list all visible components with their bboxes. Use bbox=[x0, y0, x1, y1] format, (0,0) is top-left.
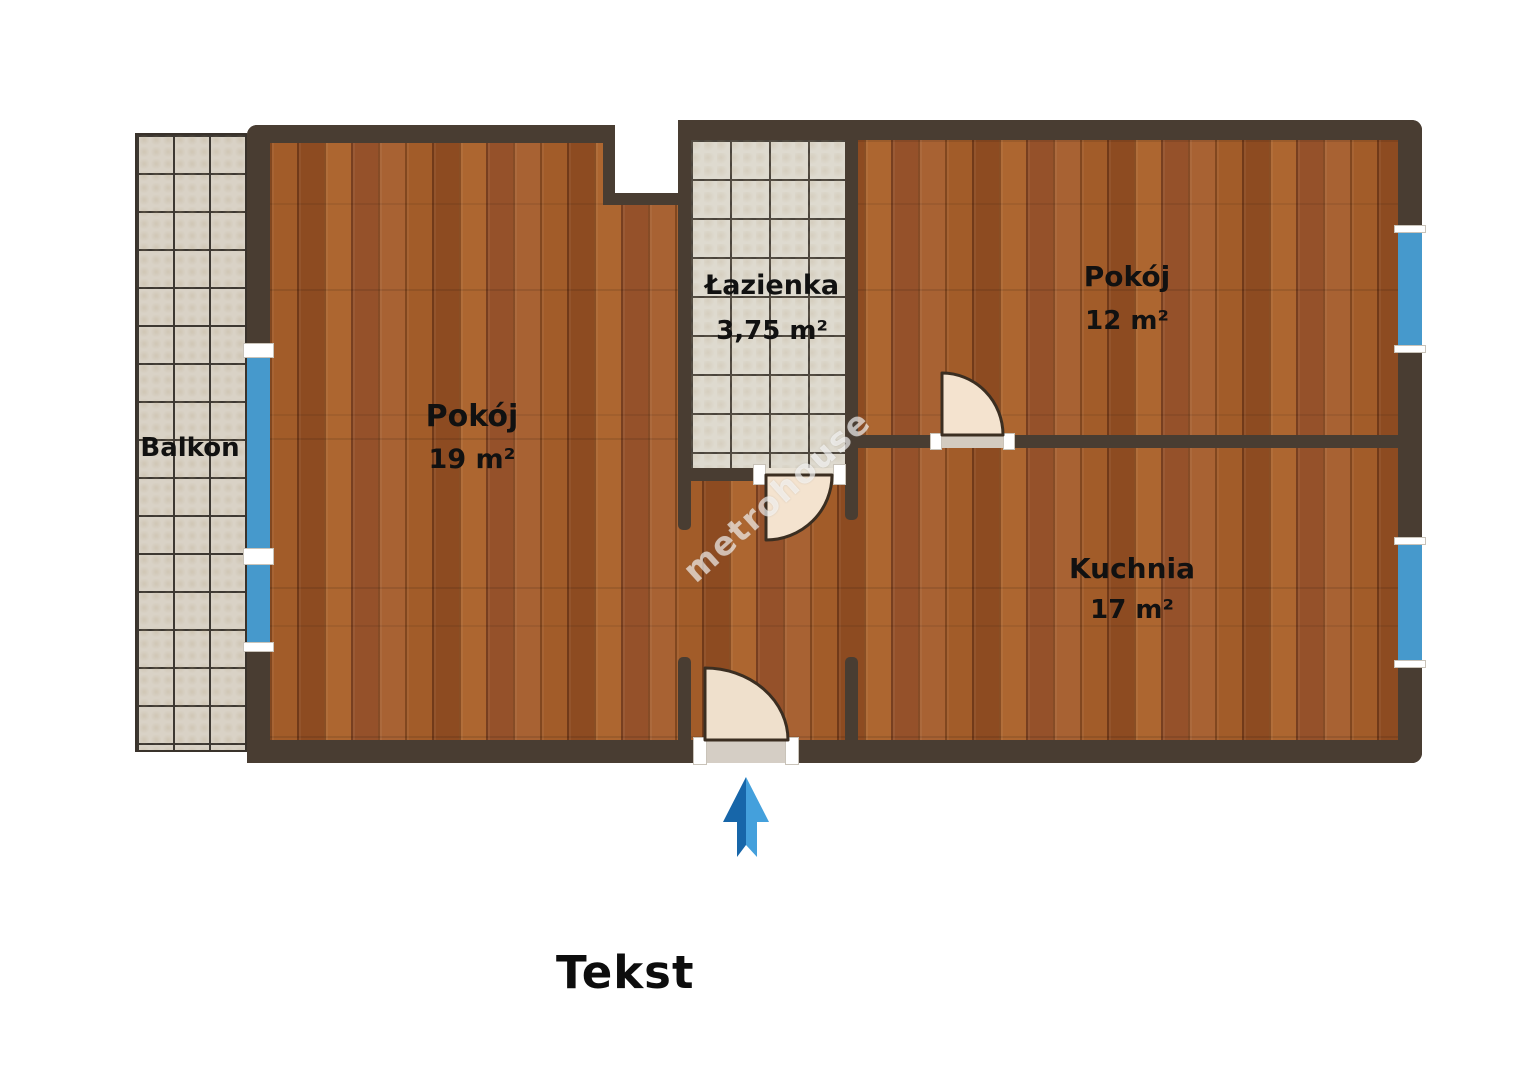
floor-plan: Pokój 19 m² Łazienka 3,75 m² Pokój 12 m²… bbox=[0, 0, 1526, 1080]
window-jamb bbox=[1394, 537, 1426, 545]
wall-left-upper bbox=[247, 125, 270, 343]
room-name: Łazienka bbox=[662, 272, 882, 299]
wall-room12-kitchen-right bbox=[1015, 435, 1398, 448]
wall-bathroom-bottom bbox=[691, 468, 753, 481]
window-jamb bbox=[243, 343, 274, 358]
wall-bottom-right bbox=[799, 740, 1422, 763]
wall-bottom-left bbox=[247, 740, 693, 763]
room-name: Balkon bbox=[129, 435, 251, 461]
room-name: Pokój bbox=[1017, 263, 1237, 291]
room12-window bbox=[1398, 233, 1422, 345]
balcony-window-lower bbox=[247, 565, 270, 642]
room-label-balkon: Balkon bbox=[129, 435, 251, 461]
room-area: 17 m² bbox=[1022, 597, 1242, 623]
room-name: Kuchnia bbox=[1022, 555, 1242, 583]
door-jamb bbox=[1003, 433, 1015, 450]
wall-top-right bbox=[678, 120, 1422, 140]
building-recess bbox=[615, 106, 678, 193]
door-jamb bbox=[785, 737, 799, 765]
entrance-arrow-icon bbox=[723, 777, 769, 857]
wall-hall-right-stub bbox=[845, 657, 858, 740]
room-name: Pokój bbox=[362, 402, 582, 432]
window-jamb bbox=[1394, 660, 1426, 668]
entrance-threshold bbox=[707, 740, 785, 763]
room-area: 19 m² bbox=[362, 446, 582, 473]
room-label-pokoj12: Pokój 12 m² bbox=[1017, 263, 1237, 334]
window-jamb bbox=[1394, 225, 1426, 233]
wall-top-left bbox=[247, 125, 615, 143]
room-area: 3,75 m² bbox=[662, 318, 882, 344]
door-jamb bbox=[693, 737, 707, 765]
wall-right-middle bbox=[1398, 353, 1422, 537]
wall-recess-left bbox=[603, 125, 615, 205]
window-mullion bbox=[243, 548, 274, 565]
window-jamb bbox=[243, 642, 274, 652]
room-label-kuchnia: Kuchnia 17 m² bbox=[1022, 555, 1242, 623]
door-jamb bbox=[930, 433, 942, 450]
wall-right-upper bbox=[1398, 120, 1422, 225]
room12-door-threshold bbox=[942, 435, 1003, 448]
room-area: 12 m² bbox=[1017, 308, 1237, 334]
room-label-pokoj19: Pokój 19 m² bbox=[362, 402, 582, 473]
wall-hall-left-stub bbox=[678, 657, 691, 740]
plan-caption: Tekst bbox=[556, 946, 694, 999]
kitchen-window bbox=[1398, 545, 1422, 660]
room-label-lazienka: Łazienka 3,75 m² bbox=[662, 272, 882, 344]
window-jamb bbox=[1394, 345, 1426, 353]
